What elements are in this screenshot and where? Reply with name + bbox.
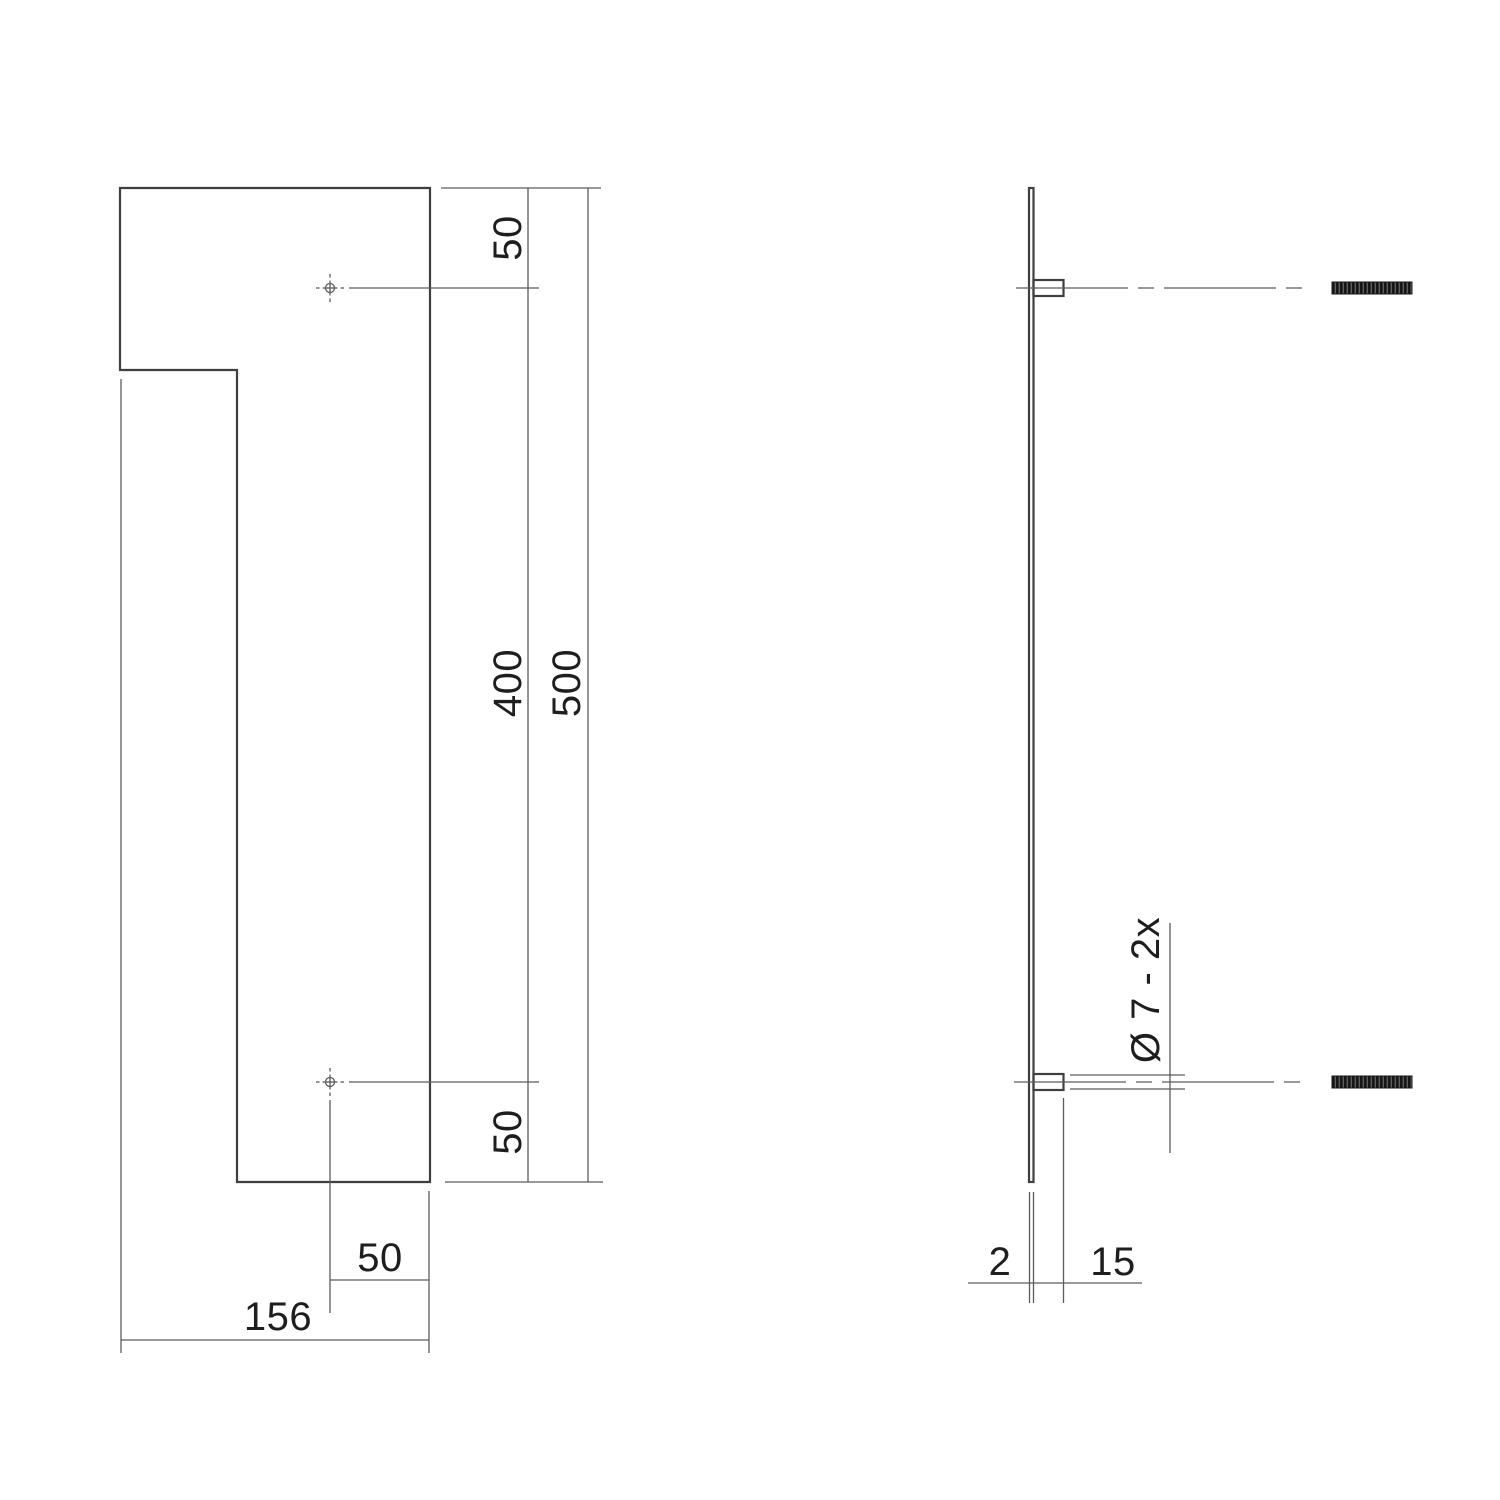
background — [0, 0, 1500, 1500]
dim-text-hole-spacing: 400 — [486, 649, 530, 717]
dim-text-total-width: 156 — [244, 1295, 312, 1339]
dim-text-total-height: 500 — [545, 649, 589, 717]
drawing-canvas: 50 400 500 50 50 156 — [0, 0, 1500, 1500]
dim-text-plate-thickness: 2 — [989, 1240, 1012, 1284]
dim-text-hole-to-right-edge: 50 — [357, 1236, 403, 1280]
dim-text-hole-to-bottom: 50 — [486, 1109, 530, 1155]
threaded-stud-bottom — [1332, 1076, 1412, 1088]
dim-text-boss-length: 15 — [1090, 1240, 1136, 1284]
technical-drawing: 50 400 500 50 50 156 — [0, 0, 1500, 1500]
dim-text-hole-note: Ø 7 - 2x — [1124, 917, 1168, 1063]
threaded-stud-top — [1332, 282, 1412, 294]
dim-text-top-edge-to-hole: 50 — [486, 215, 530, 261]
